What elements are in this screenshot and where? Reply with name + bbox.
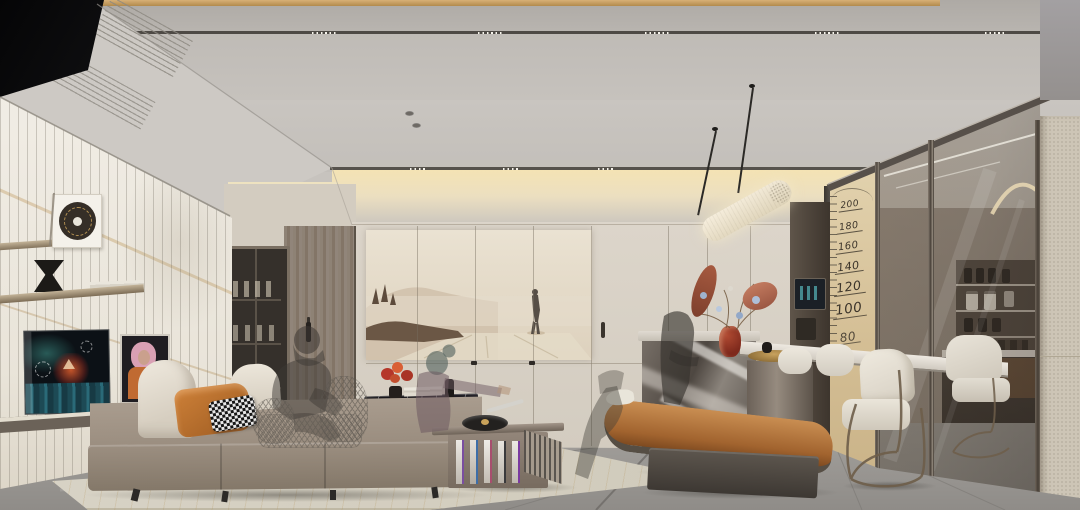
gold-trim-strip xyxy=(95,0,940,6)
recessed-spotlight-1 xyxy=(405,111,414,116)
record-art-frame xyxy=(52,194,102,248)
table-book-stack xyxy=(404,386,442,396)
blue-blossom-1 xyxy=(700,292,707,299)
wireframe-chair-base xyxy=(258,414,362,448)
mural-wall-top-line xyxy=(352,224,830,225)
dining-chair-b-seat xyxy=(952,378,1010,402)
wall-seam-3 xyxy=(533,226,534,446)
tv-glass-edge xyxy=(24,332,32,414)
partition-frame-left xyxy=(875,162,880,492)
pendant-mount-dot-1 xyxy=(712,127,718,131)
sofa-leg-3 xyxy=(330,490,336,500)
leather-column xyxy=(1040,116,1080,510)
tray-jar xyxy=(762,342,772,353)
tv-doodle-circle-1 xyxy=(35,361,51,377)
book-slot-3 xyxy=(484,440,492,483)
control-screen xyxy=(794,278,826,310)
ceiling-corner-right xyxy=(1040,0,1080,100)
wall-seam-4 xyxy=(591,226,592,446)
partition-frame-mid xyxy=(928,140,934,496)
far-chair-back-2 xyxy=(816,344,854,376)
door-handle xyxy=(306,322,311,342)
cabinet-handle-dot-2 xyxy=(529,361,535,365)
cabinet-handle-dot-1 xyxy=(471,361,477,365)
far-chair-back-1 xyxy=(778,348,812,374)
control-switch xyxy=(796,318,816,340)
poster-face xyxy=(138,350,150,365)
blue-blossom-3 xyxy=(736,312,743,319)
recessed-spotlight-2 xyxy=(412,123,421,128)
wall-tv xyxy=(23,329,110,414)
book-slot-5 xyxy=(512,441,520,483)
dining-chair-a-seat xyxy=(842,399,910,430)
tv-doodle-circle-2 xyxy=(80,341,92,353)
glassware-row-2 xyxy=(233,325,277,341)
mural-artwork xyxy=(366,230,592,360)
dining-chair-b-back xyxy=(946,335,1002,381)
book-slot-2 xyxy=(470,440,478,484)
table-flower-4 xyxy=(390,374,400,383)
cabinet-shelf-2 xyxy=(229,343,281,345)
blue-blossom-4 xyxy=(716,306,722,312)
book-slot-4 xyxy=(498,441,506,483)
sofa-seam-1 xyxy=(220,444,222,490)
cabinet-shelf-1 xyxy=(229,299,281,301)
tv-doodle-triangle xyxy=(63,359,75,369)
turntable-hub xyxy=(481,419,489,425)
glassware-row-1 xyxy=(233,281,277,297)
mural-graphic xyxy=(366,230,592,360)
dining-chair-a-back xyxy=(859,348,916,405)
right-door-handle xyxy=(601,322,605,338)
table-flower-3 xyxy=(401,370,413,381)
control-screen-glyphs xyxy=(800,286,818,300)
sofa-front-face xyxy=(88,441,466,491)
blue-blossom-2 xyxy=(752,296,760,304)
chair-shadow xyxy=(842,481,937,491)
sofa-seam-2 xyxy=(324,442,326,488)
island-top-slab xyxy=(638,331,760,341)
record-center-dot xyxy=(73,217,82,226)
book-slot-1 xyxy=(456,440,464,484)
living-dining-room-render: 200 180 160 140 120 100 80 xyxy=(0,0,1080,510)
pendant-mount-dot-2 xyxy=(749,84,755,88)
bench-plinth xyxy=(647,448,819,499)
leather-column-seam xyxy=(1040,356,1080,357)
white-sprig xyxy=(728,286,733,291)
island-red-vase xyxy=(719,326,741,357)
